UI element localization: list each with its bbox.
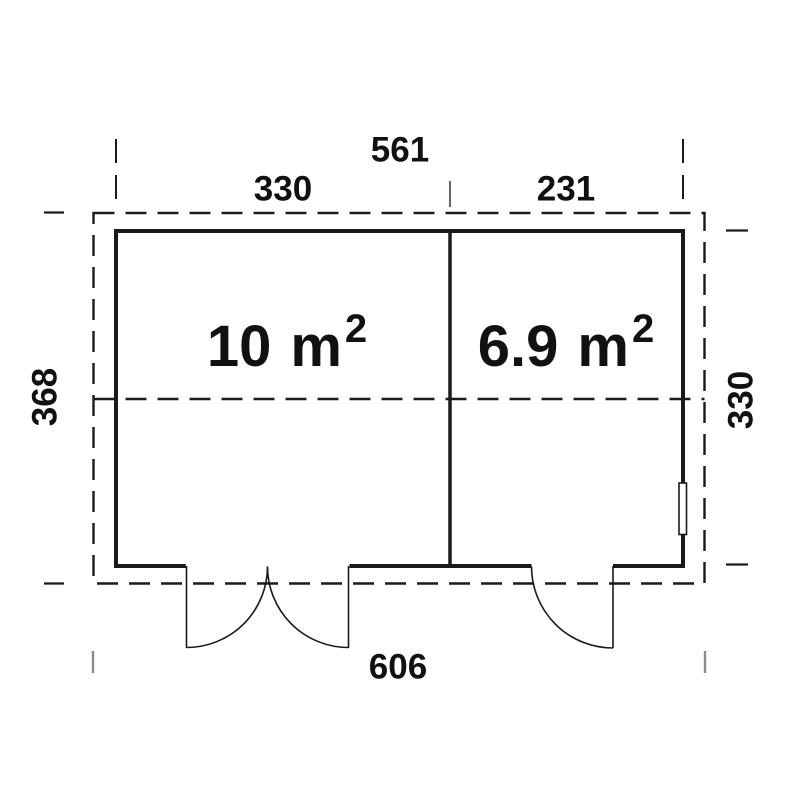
room-1-area-unit: m xyxy=(290,318,342,376)
dim-right-depth: 330 xyxy=(724,371,759,429)
double-door-right-swing-arc xyxy=(268,567,349,648)
room-1-area-label: 10 m 2 xyxy=(207,318,367,376)
room-2-area-label: 6.9 m 2 xyxy=(478,318,654,376)
room-2-area-superscript: 2 xyxy=(632,309,654,349)
dim-bottom-overall: 606 xyxy=(369,650,427,685)
dim-top-right-section: 231 xyxy=(537,172,595,207)
room-2-area-value: 6.9 xyxy=(478,318,559,376)
dim-left-depth: 368 xyxy=(28,368,63,426)
window xyxy=(679,483,687,535)
dim-top-overall: 561 xyxy=(371,133,429,168)
dim-top-left-section: 330 xyxy=(254,172,312,207)
double-door-left-swing-arc xyxy=(187,567,268,648)
single-door-swing-arc xyxy=(532,567,614,649)
room-2-area-unit: m xyxy=(577,318,629,376)
room-1-area-superscript: 2 xyxy=(345,309,367,349)
double-door xyxy=(187,566,349,648)
floor-plan: 561 330 231 368 330 606 10 m 2 6.9 m 2 xyxy=(0,0,800,800)
room-1-area-value: 10 xyxy=(207,318,272,376)
dimension-marks xyxy=(44,139,748,673)
dashed-boundary xyxy=(94,213,705,584)
single-door xyxy=(532,566,614,648)
